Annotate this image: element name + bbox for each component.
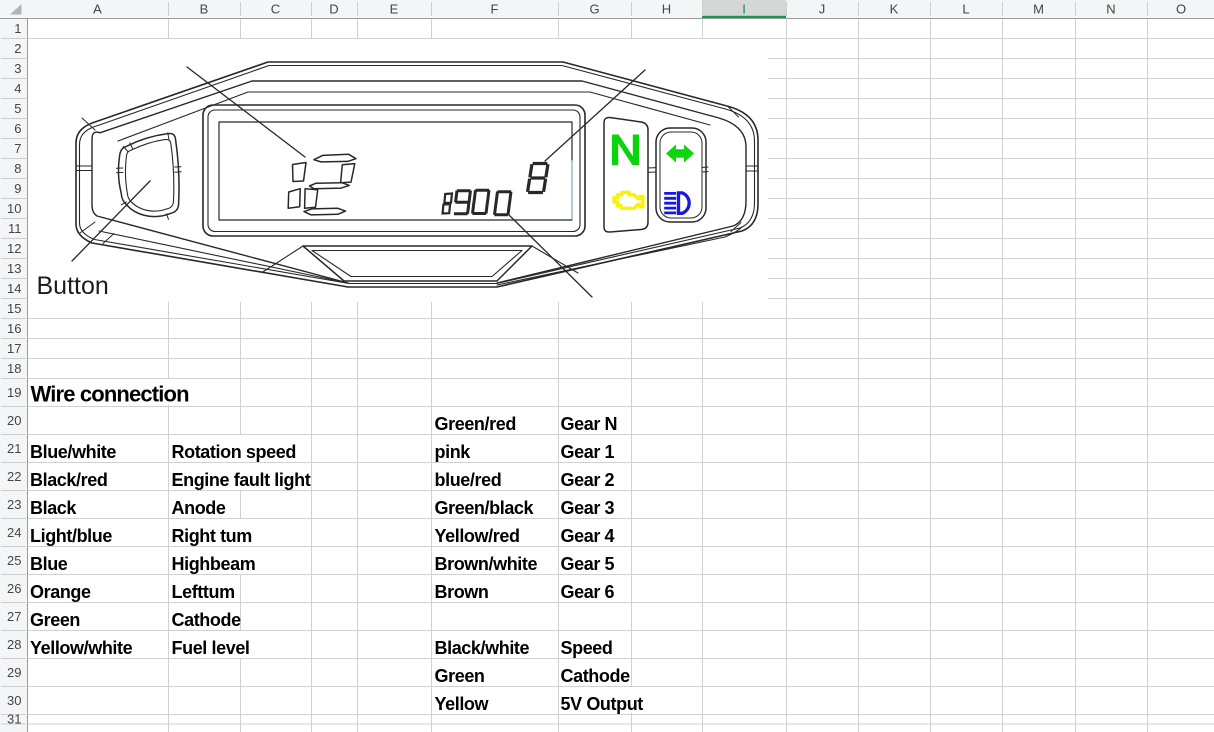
svg-text:7: 7 [14,141,21,156]
svg-text:Black/red: Black/red [30,470,107,490]
svg-text:G: G [589,2,599,17]
svg-text:11: 11 [8,221,22,236]
svg-text:M: M [1033,2,1044,17]
svg-text:30: 30 [7,693,21,708]
svg-text:15: 15 [7,301,21,316]
svg-text:26: 26 [7,581,21,596]
svg-text:O: O [1176,2,1186,17]
svg-text:22: 22 [7,469,21,484]
svg-text:2: 2 [14,41,21,56]
svg-text:Light/blue: Light/blue [30,526,112,546]
svg-text:Cathode: Cathode [561,666,631,686]
svg-text:18: 18 [7,361,21,376]
svg-text:28: 28 [7,637,21,652]
svg-text:Gear 1: Gear 1 [561,442,615,462]
svg-text:23: 23 [7,497,21,512]
svg-text:Blue: Blue [30,554,68,574]
svg-text:13: 13 [7,261,21,276]
svg-text:pink: pink [435,442,472,462]
svg-text:29: 29 [7,665,21,680]
svg-text:C: C [271,2,280,17]
svg-text:Orange: Orange [30,582,91,602]
svg-text:5: 5 [14,101,21,116]
svg-text:9: 9 [14,181,21,196]
svg-text:3: 3 [14,61,21,76]
svg-text:16: 16 [7,321,21,336]
svg-text:4: 4 [14,81,21,96]
svg-text:Yellow: Yellow [435,694,490,714]
svg-text:14: 14 [7,281,21,296]
svg-text:A: A [93,2,102,17]
svg-text:Yellow/red: Yellow/red [435,526,520,546]
svg-text:27: 27 [7,609,21,624]
svg-text:E: E [390,2,399,17]
svg-text:Black/white: Black/white [435,638,530,658]
svg-text:Brown/white: Brown/white [435,554,538,574]
svg-text:Anode: Anode [172,498,226,518]
svg-text:H: H [662,2,671,17]
svg-text:L: L [962,2,969,17]
svg-text:12: 12 [7,241,21,256]
svg-text:Gear 3: Gear 3 [561,498,615,518]
svg-text:Gear 2: Gear 2 [561,470,615,490]
svg-text:Green: Green [30,610,80,630]
svg-text:Highbeam: Highbeam [172,554,256,574]
svg-text:17: 17 [7,341,21,356]
svg-text:Green: Green [435,666,485,686]
svg-text:D: D [329,2,338,17]
svg-text:24: 24 [7,525,21,540]
svg-text:Wire connection: Wire connection [31,382,190,407]
svg-text:Button: Button [37,272,109,300]
svg-text:B: B [200,2,209,17]
svg-text:Rotation speed: Rotation speed [172,442,296,462]
svg-text:Engine fault light: Engine fault light [172,470,311,490]
svg-text:F: F [491,2,499,17]
svg-text:Gear N: Gear N [561,414,618,434]
svg-text:N: N [1106,2,1115,17]
svg-text:J: J [819,2,826,17]
svg-text:Fuel level: Fuel level [172,638,250,658]
svg-text:Gear 4: Gear 4 [561,526,615,546]
svg-text:Yellow/white: Yellow/white [30,638,133,658]
svg-text:Gear 6: Gear 6 [561,582,615,602]
svg-text:I: I [742,2,746,17]
svg-text:Speed: Speed [561,638,613,658]
svg-text:Green/black: Green/black [435,498,535,518]
svg-text:5V Output: 5V Output [561,694,644,714]
svg-text:19: 19 [7,385,21,400]
svg-text:Brown: Brown [435,582,489,602]
svg-text:Lefttum: Lefttum [172,582,235,602]
svg-text:1: 1 [14,21,21,36]
svg-text:Black: Black [30,498,77,518]
svg-text:Right tum: Right tum [172,526,252,546]
svg-text:20: 20 [7,413,21,428]
svg-text:K: K [890,2,899,17]
svg-text:Cathode: Cathode [172,610,242,630]
svg-text:31: 31 [7,711,21,726]
svg-text:Green/red: Green/red [435,414,516,434]
svg-text:6: 6 [14,121,21,136]
svg-text:21: 21 [7,441,21,456]
svg-text:Gear 5: Gear 5 [561,554,615,574]
svg-text:blue/red: blue/red [435,470,502,490]
svg-text:Blue/white: Blue/white [30,442,116,462]
svg-text:10: 10 [7,201,21,216]
svg-text:25: 25 [7,553,21,568]
svg-text:8: 8 [14,161,21,176]
